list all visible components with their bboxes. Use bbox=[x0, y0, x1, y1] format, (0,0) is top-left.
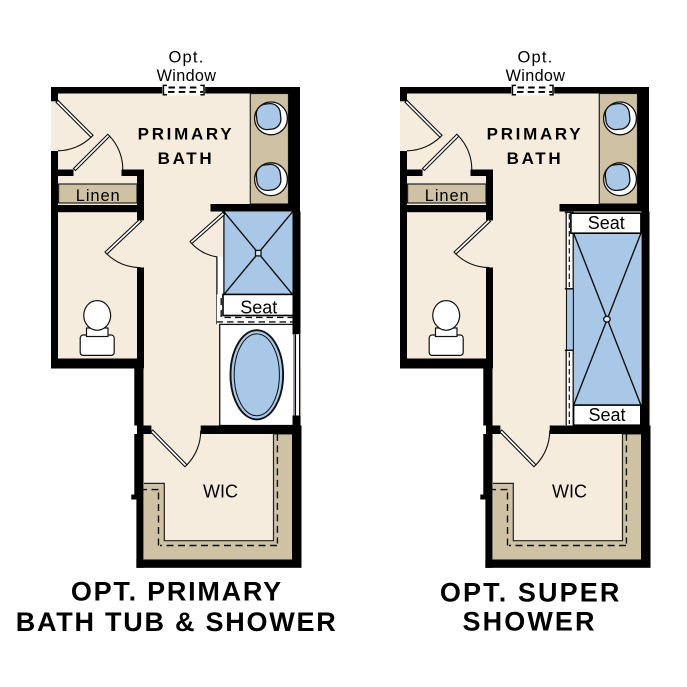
svg-text:BATH: BATH bbox=[158, 149, 215, 168]
svg-text:Window: Window bbox=[157, 67, 217, 85]
svg-text:Seat: Seat bbox=[588, 405, 625, 425]
svg-text:Opt.: Opt. bbox=[169, 49, 205, 67]
svg-text:Seat: Seat bbox=[588, 213, 625, 233]
svg-text:Linen: Linen bbox=[76, 187, 121, 205]
svg-text:Linen: Linen bbox=[425, 187, 470, 205]
svg-text:WIC: WIC bbox=[203, 482, 238, 502]
svg-text:OPT. SUPER: OPT. SUPER bbox=[440, 577, 622, 607]
svg-text:BATH TUB & SHOWER: BATH TUB & SHOWER bbox=[16, 607, 338, 637]
svg-text:Window: Window bbox=[506, 67, 566, 85]
svg-text:WIC: WIC bbox=[552, 482, 587, 502]
svg-text:PRIMARY: PRIMARY bbox=[138, 124, 235, 143]
svg-text:SHOWER: SHOWER bbox=[463, 606, 597, 636]
svg-text:PRIMARY: PRIMARY bbox=[487, 124, 584, 143]
svg-text:BATH: BATH bbox=[507, 149, 564, 168]
svg-text:Opt.: Opt. bbox=[518, 49, 554, 67]
svg-text:Seat: Seat bbox=[240, 297, 277, 317]
svg-text:OPT. PRIMARY: OPT. PRIMARY bbox=[71, 577, 283, 607]
